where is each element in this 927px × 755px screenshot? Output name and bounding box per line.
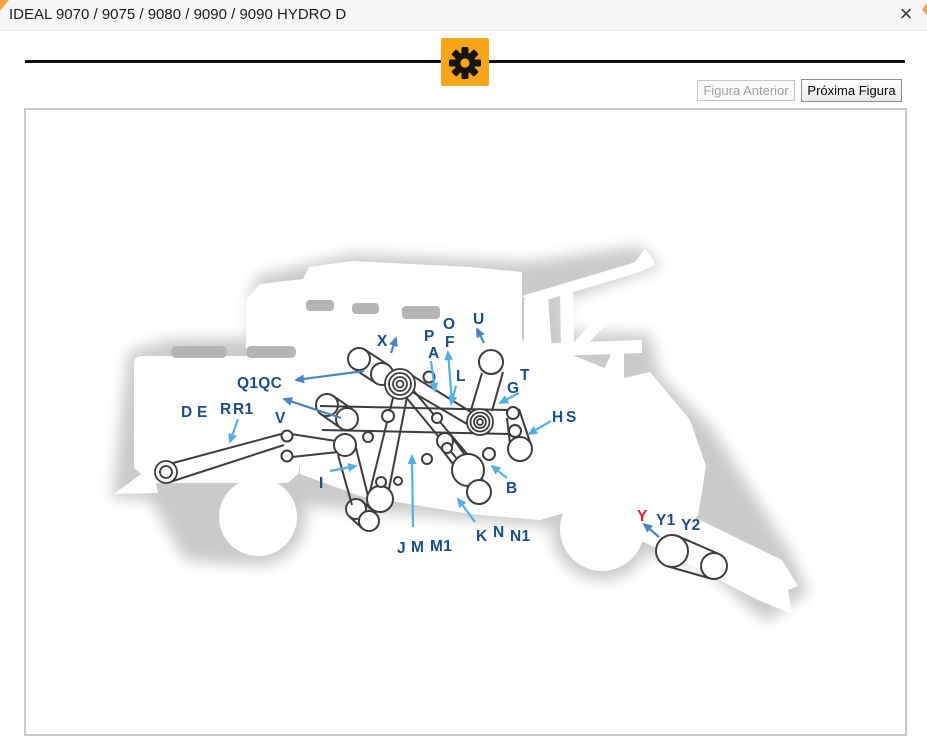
previous-figure-button[interactable]: Figura Anterior: [697, 80, 795, 101]
part-label-J: J: [397, 540, 406, 557]
part-label-F: F: [445, 334, 455, 351]
pulley: [442, 443, 452, 453]
part-label-R1: R1: [233, 401, 253, 418]
window-title: IDEAL 9070 / 9075 / 9080 / 9090 / 9090 H…: [9, 0, 346, 30]
pulley: [467, 480, 491, 504]
pulley: [509, 425, 521, 437]
pulley: [282, 431, 293, 442]
roller-end: [656, 535, 688, 567]
part-label-A: A: [428, 345, 440, 362]
part-label-E: E: [197, 404, 208, 421]
close-icon: ×: [900, 1, 913, 26]
close-button[interactable]: ×: [893, 1, 919, 27]
page: IDEAL 9070 / 9075 / 9080 / 9090 / 9090 H…: [0, 0, 927, 755]
grooved-pulley-ring: [155, 461, 177, 483]
part-label-M: M: [411, 539, 424, 556]
part-label-H: H: [552, 409, 564, 426]
pulley: [432, 413, 442, 423]
corner-accent-icon: [922, 3, 927, 15]
part-label-P: P: [424, 328, 435, 345]
part-label-N1: N1: [510, 528, 530, 545]
corner-accent-icon: [0, 0, 9, 11]
part-label-S: S: [566, 409, 577, 426]
part-label-R: R: [220, 401, 232, 418]
pulley: [382, 410, 394, 422]
pulley: [376, 477, 386, 487]
pulley: [367, 486, 393, 512]
part-label-M1: M1: [430, 538, 452, 555]
part-label-B: B: [506, 480, 518, 497]
next-figure-button[interactable]: Próxima Figura: [801, 79, 902, 102]
part-label-L: L: [456, 368, 466, 385]
part-label-Q1QC: Q1QC: [237, 375, 282, 392]
pulley: [394, 477, 402, 485]
pulley: [422, 454, 432, 464]
part-label-I: I: [319, 475, 324, 492]
pointer-arrow-line: [412, 464, 413, 527]
pulley: [483, 448, 495, 460]
part-label-Y2: Y2: [681, 517, 701, 534]
part-label-U: U: [473, 311, 485, 328]
pulley: [282, 451, 293, 462]
part-label-K: K: [476, 528, 488, 545]
part-label-Y: Y: [637, 508, 648, 525]
part-label-T: T: [520, 367, 530, 384]
part-label-O: O: [443, 316, 455, 333]
figure-panel: XPAOFULGTQ1QCVDERR1HSIBKNN1JMM1YY1Y2: [24, 108, 907, 736]
pulley: [363, 432, 373, 442]
part-label-D: D: [181, 404, 193, 421]
combine-belt-diagram: XPAOFULGTQ1QCVDERR1HSIBKNN1JMM1YY1Y2: [26, 110, 901, 730]
pulley: [508, 437, 532, 461]
part-label-V: V: [275, 410, 286, 427]
part-label-Y1: Y1: [656, 512, 676, 529]
part-label-X: X: [377, 333, 388, 350]
gear-icon: [441, 38, 489, 86]
gear-button[interactable]: [441, 38, 489, 86]
pulley: [507, 407, 519, 419]
part-label-G: G: [507, 380, 519, 397]
part-label-N: N: [493, 524, 505, 541]
roller-end: [701, 553, 727, 579]
pulley: [334, 434, 356, 456]
pulley: [479, 350, 503, 374]
window-titlebar: IDEAL 9070 / 9075 / 9080 / 9090 / 9090 H…: [0, 0, 927, 31]
